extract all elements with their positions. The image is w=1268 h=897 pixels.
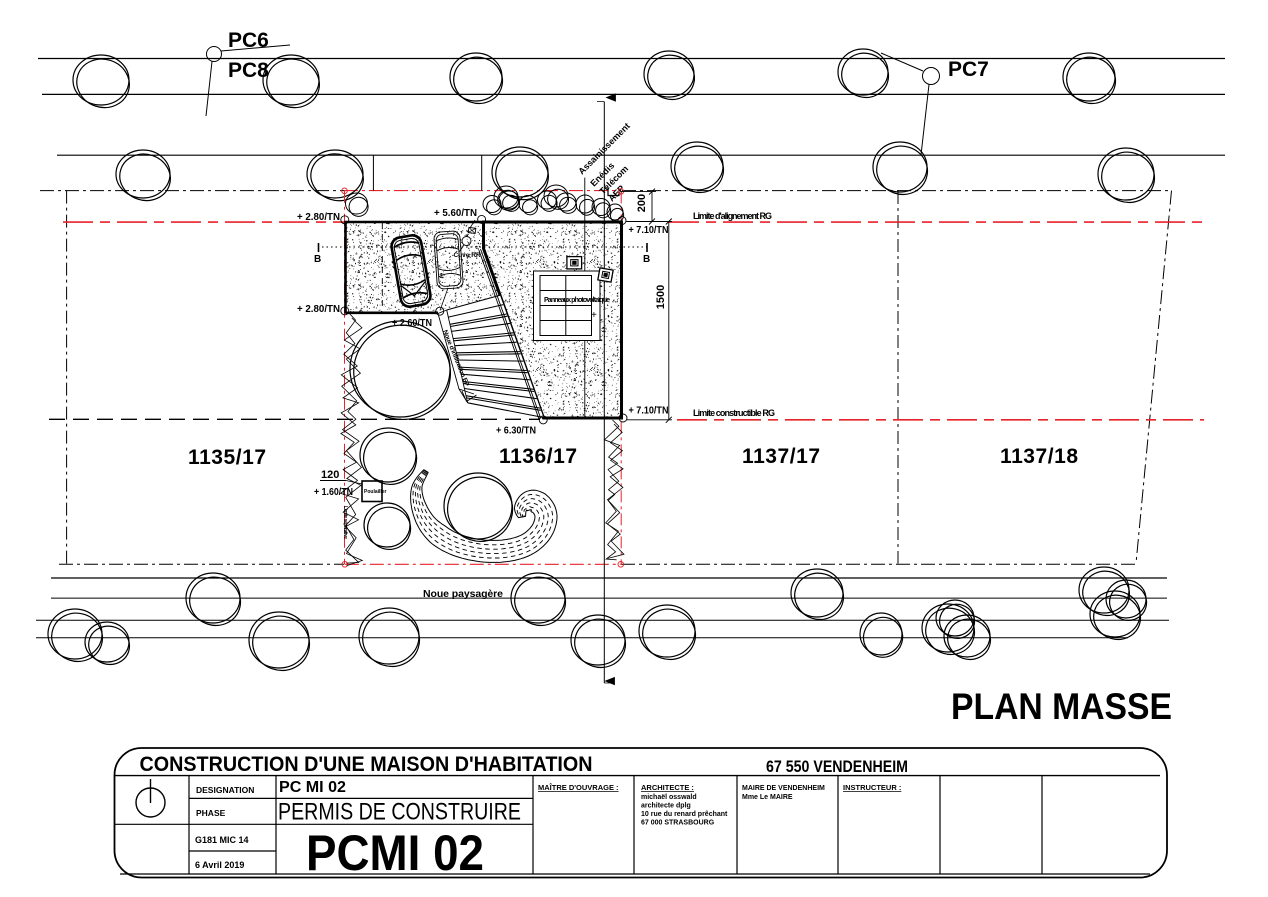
svg-text:CONSTRUCTION D'UNE MAISON D'HA: CONSTRUCTION D'UNE MAISON D'HABITATION	[140, 752, 593, 776]
svg-text:120: 120	[321, 469, 339, 481]
svg-text:6 Avril 2019: 6 Avril 2019	[195, 860, 244, 870]
svg-text:+ 2.80/TN: + 2.80/TN	[297, 211, 340, 223]
svg-text:PC7: PC7	[948, 58, 989, 81]
svg-text:Limite constructible RG: Limite constructible RG	[693, 408, 775, 418]
svg-text:DESIGNATION: DESIGNATION	[196, 785, 254, 795]
svg-text:200: 200	[636, 194, 648, 212]
svg-text:Limite d'alignement RG: Limite d'alignement RG	[693, 211, 772, 221]
svg-text:+ 2.80/TN: + 2.80/TN	[297, 303, 340, 315]
svg-text:Panneaux photovoltaïque: Panneaux photovoltaïque	[544, 297, 610, 304]
svg-text:+ 6.30/TN: + 6.30/TN	[496, 425, 536, 437]
svg-text:10 rue du renard prêchant: 10 rue du renard prêchant	[641, 811, 728, 818]
svg-text:+ 5.60/TN: + 5.60/TN	[434, 207, 477, 219]
svg-text:+: +	[591, 310, 597, 321]
svg-text:67 550 VENDENHEIM: 67 550 VENDENHEIM	[766, 757, 908, 776]
svg-text:1500: 1500	[655, 285, 667, 309]
svg-text:MAÎTRE D'OUVRAGE :: MAÎTRE D'OUVRAGE :	[538, 783, 619, 792]
svg-text:B: B	[643, 254, 650, 265]
svg-text:PLAN MASSE: PLAN MASSE	[951, 686, 1172, 727]
svg-text:67 000 STRASBOURG: 67 000 STRASBOURG	[641, 820, 715, 827]
svg-text:G181 MIC 14: G181 MIC 14	[195, 835, 249, 845]
svg-text:PC MI 02: PC MI 02	[279, 779, 346, 796]
svg-text:ARCHITECTE :: ARCHITECTE :	[641, 783, 694, 792]
svg-text:michaël osswald: michaël osswald	[641, 794, 697, 801]
svg-text:MAIRE DE VENDENHEIM: MAIRE DE VENDENHEIM	[742, 785, 825, 792]
svg-text:Noue paysagère: Noue paysagère	[423, 588, 503, 600]
svg-text:1137/17: 1137/17	[742, 445, 820, 468]
svg-text:architecte dplg: architecte dplg	[641, 803, 691, 810]
svg-text:PERMIS DE CONSTRUIRE: PERMIS DE CONSTRUIRE	[278, 799, 521, 826]
svg-text:B: B	[314, 254, 321, 265]
svg-text:1135/17: 1135/17	[188, 446, 266, 469]
svg-text:Poulailler: Poulailler	[364, 489, 387, 495]
svg-text:Mme Le MAIRE: Mme Le MAIRE	[742, 794, 793, 801]
svg-text:PC8: PC8	[228, 59, 269, 82]
svg-text:INSTRUCTEUR :: INSTRUCTEUR :	[843, 783, 901, 792]
svg-text:Cuve RR: Cuve RR	[454, 252, 481, 259]
svg-text:PC6: PC6	[228, 29, 269, 52]
svg-text:+ 7.10/TN: + 7.10/TN	[629, 405, 669, 417]
svg-text:PHASE: PHASE	[196, 808, 226, 818]
svg-text:1136/17: 1136/17	[499, 445, 577, 468]
svg-text:PCMI 02: PCMI 02	[306, 825, 484, 881]
svg-text:+ 7.10/TN: + 7.10/TN	[629, 224, 669, 236]
svg-text:1137/18: 1137/18	[1000, 445, 1078, 468]
